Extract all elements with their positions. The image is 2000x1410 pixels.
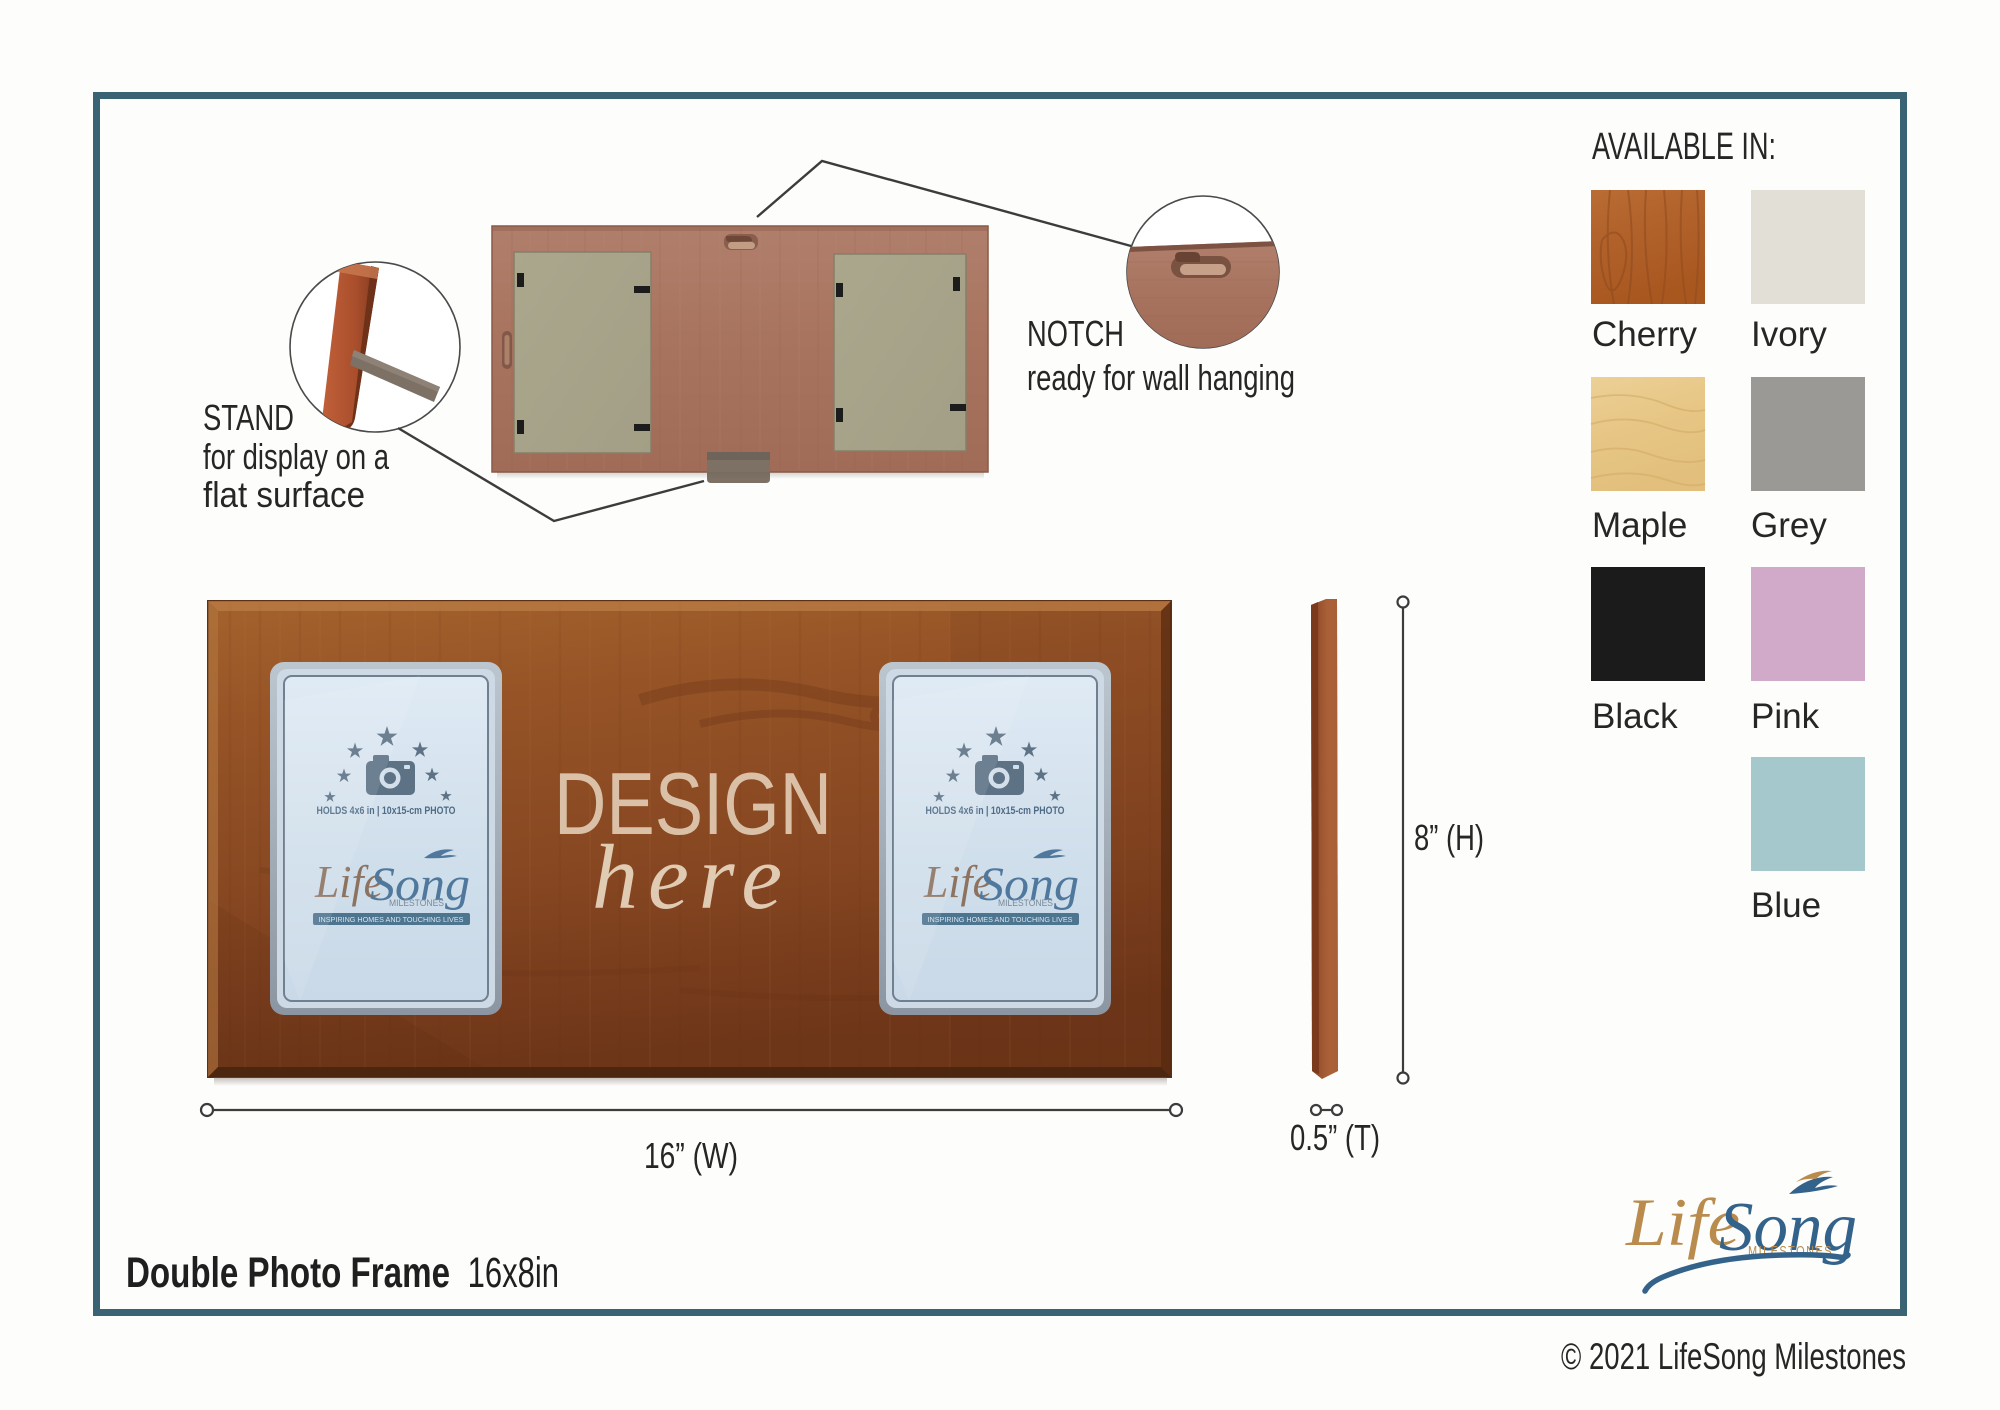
svg-text:Maple: Maple <box>1592 506 1687 545</box>
svg-text:Blue: Blue <box>1751 886 1821 925</box>
svg-text:Black: Black <box>1592 697 1678 736</box>
svg-text:ready for wall hanging: ready for wall hanging <box>1027 357 1295 398</box>
svg-text:Grey: Grey <box>1751 506 1827 545</box>
svg-text:Ivory: Ivory <box>1751 315 1827 354</box>
svg-text:for display on a: for display on a <box>203 436 390 477</box>
svg-text:Pink: Pink <box>1751 697 1820 736</box>
svg-text:16” (W): 16” (W) <box>644 1135 738 1176</box>
svg-text:AVAILABLE IN:: AVAILABLE IN: <box>1592 126 1776 168</box>
svg-text:NOTCH: NOTCH <box>1027 313 1124 354</box>
svg-text:here: here <box>592 826 792 928</box>
svg-text:Cherry: Cherry <box>1592 315 1698 354</box>
svg-text:8” (H): 8” (H) <box>1414 817 1484 858</box>
svg-text:flat surface: flat surface <box>203 474 365 515</box>
svg-text:Double Photo Frame 16x8in: Double Photo Frame 16x8in <box>126 1249 559 1297</box>
svg-text:© 2021 LifeSong Milestones: © 2021 LifeSong Milestones <box>1561 1336 1906 1377</box>
svg-text:0.5” (T): 0.5” (T) <box>1290 1117 1380 1158</box>
svg-text:STAND: STAND <box>203 397 294 438</box>
